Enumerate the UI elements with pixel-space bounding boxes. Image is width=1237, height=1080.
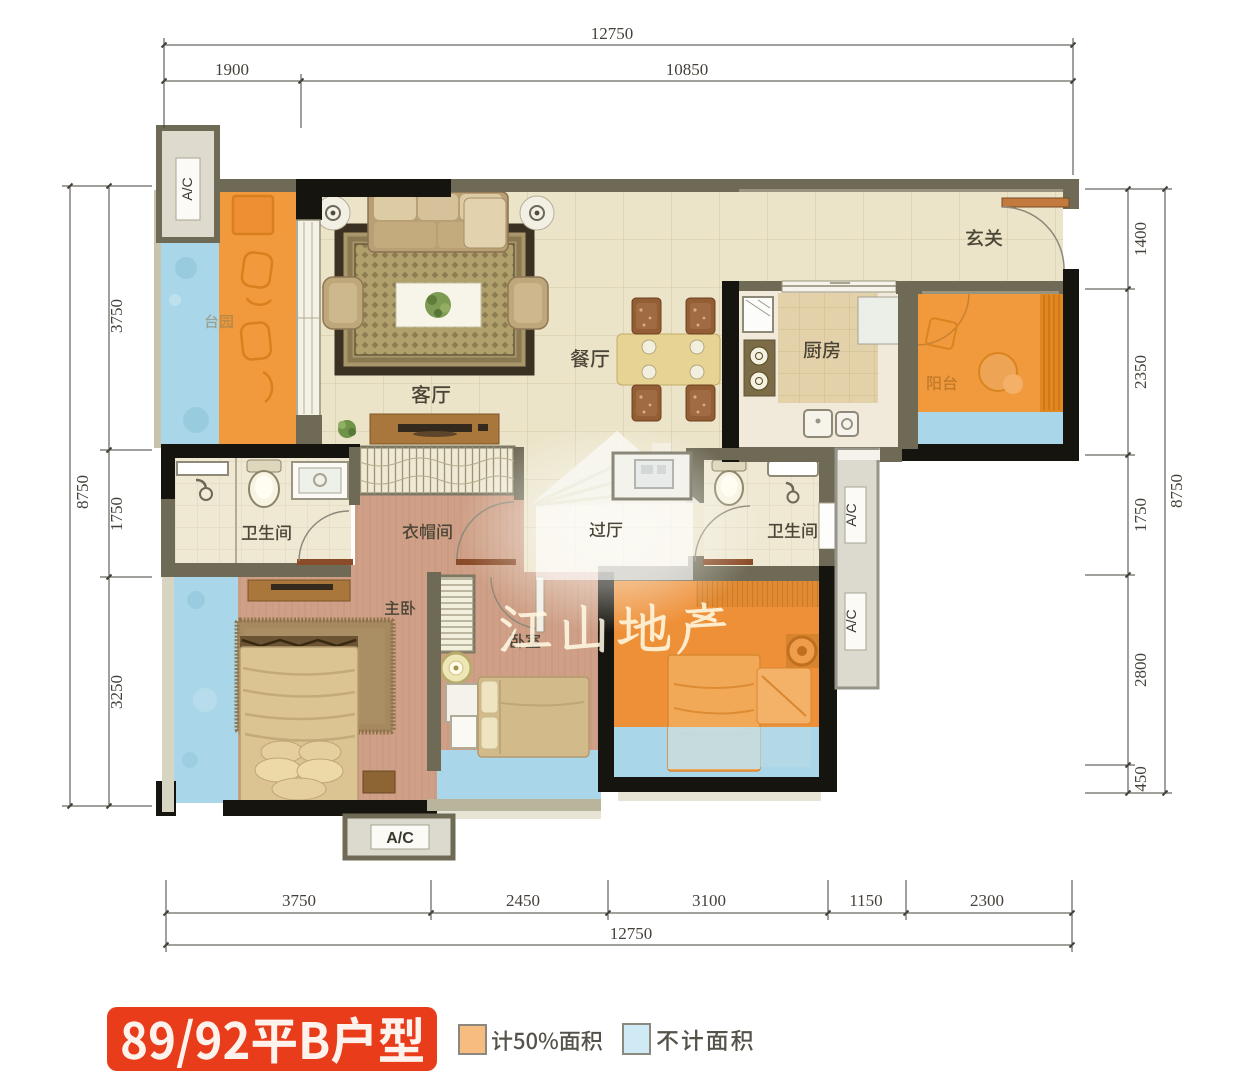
svg-text:A/C: A/C (179, 177, 195, 200)
svg-text:8750: 8750 (1167, 474, 1186, 508)
svg-text:A/C: A/C (843, 609, 859, 632)
svg-text:1750: 1750 (107, 497, 126, 531)
svg-text:2450: 2450 (506, 891, 540, 910)
svg-text:12750: 12750 (610, 924, 653, 943)
svg-text:2800: 2800 (1131, 653, 1150, 687)
svg-text:2350: 2350 (1131, 355, 1150, 389)
svg-text:8750: 8750 (73, 475, 92, 509)
svg-text:12750: 12750 (591, 24, 634, 43)
svg-text:1400: 1400 (1131, 222, 1150, 256)
svg-text:A/C: A/C (386, 830, 414, 847)
svg-text:1150: 1150 (849, 891, 882, 910)
svg-text:A/C: A/C (843, 503, 859, 526)
svg-text:3750: 3750 (282, 891, 316, 910)
svg-text:3750: 3750 (107, 299, 126, 333)
svg-text:1750: 1750 (1131, 498, 1150, 532)
svg-text:450: 450 (1131, 766, 1150, 792)
svg-text:10850: 10850 (666, 60, 709, 79)
svg-text:2300: 2300 (970, 891, 1004, 910)
svg-text:3100: 3100 (692, 891, 726, 910)
svg-text:3250: 3250 (107, 675, 126, 709)
svg-text:1900: 1900 (215, 60, 249, 79)
